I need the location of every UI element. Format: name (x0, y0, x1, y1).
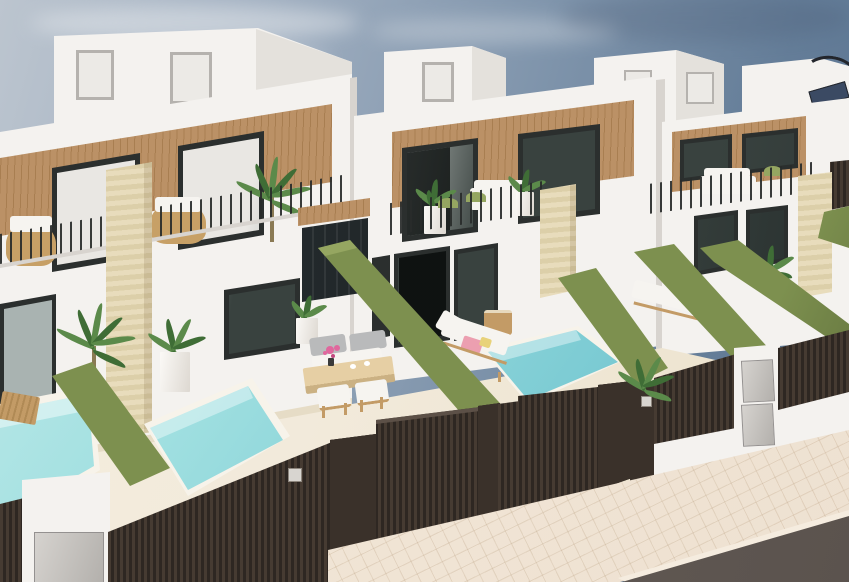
dining-chair (355, 379, 390, 406)
chair-leg (322, 406, 325, 418)
flower-vase (328, 358, 334, 366)
roof-door (76, 50, 114, 100)
plant-pot (160, 352, 190, 392)
roof-door (686, 72, 714, 104)
roof-door (422, 62, 454, 102)
wooden-lounger-partial (0, 391, 40, 425)
cup (350, 364, 356, 369)
villa-render-scene (0, 0, 849, 582)
mailbox-panel (741, 403, 775, 447)
mailbox-panel (741, 359, 775, 403)
storage-box-door (34, 532, 104, 582)
roof-door (170, 52, 212, 104)
outdoor-dining-set (296, 328, 408, 422)
flower-bouquet (326, 346, 334, 354)
potted-plant (142, 290, 212, 400)
palm-over-gate (606, 342, 686, 422)
gate-lock-plate (288, 468, 302, 482)
